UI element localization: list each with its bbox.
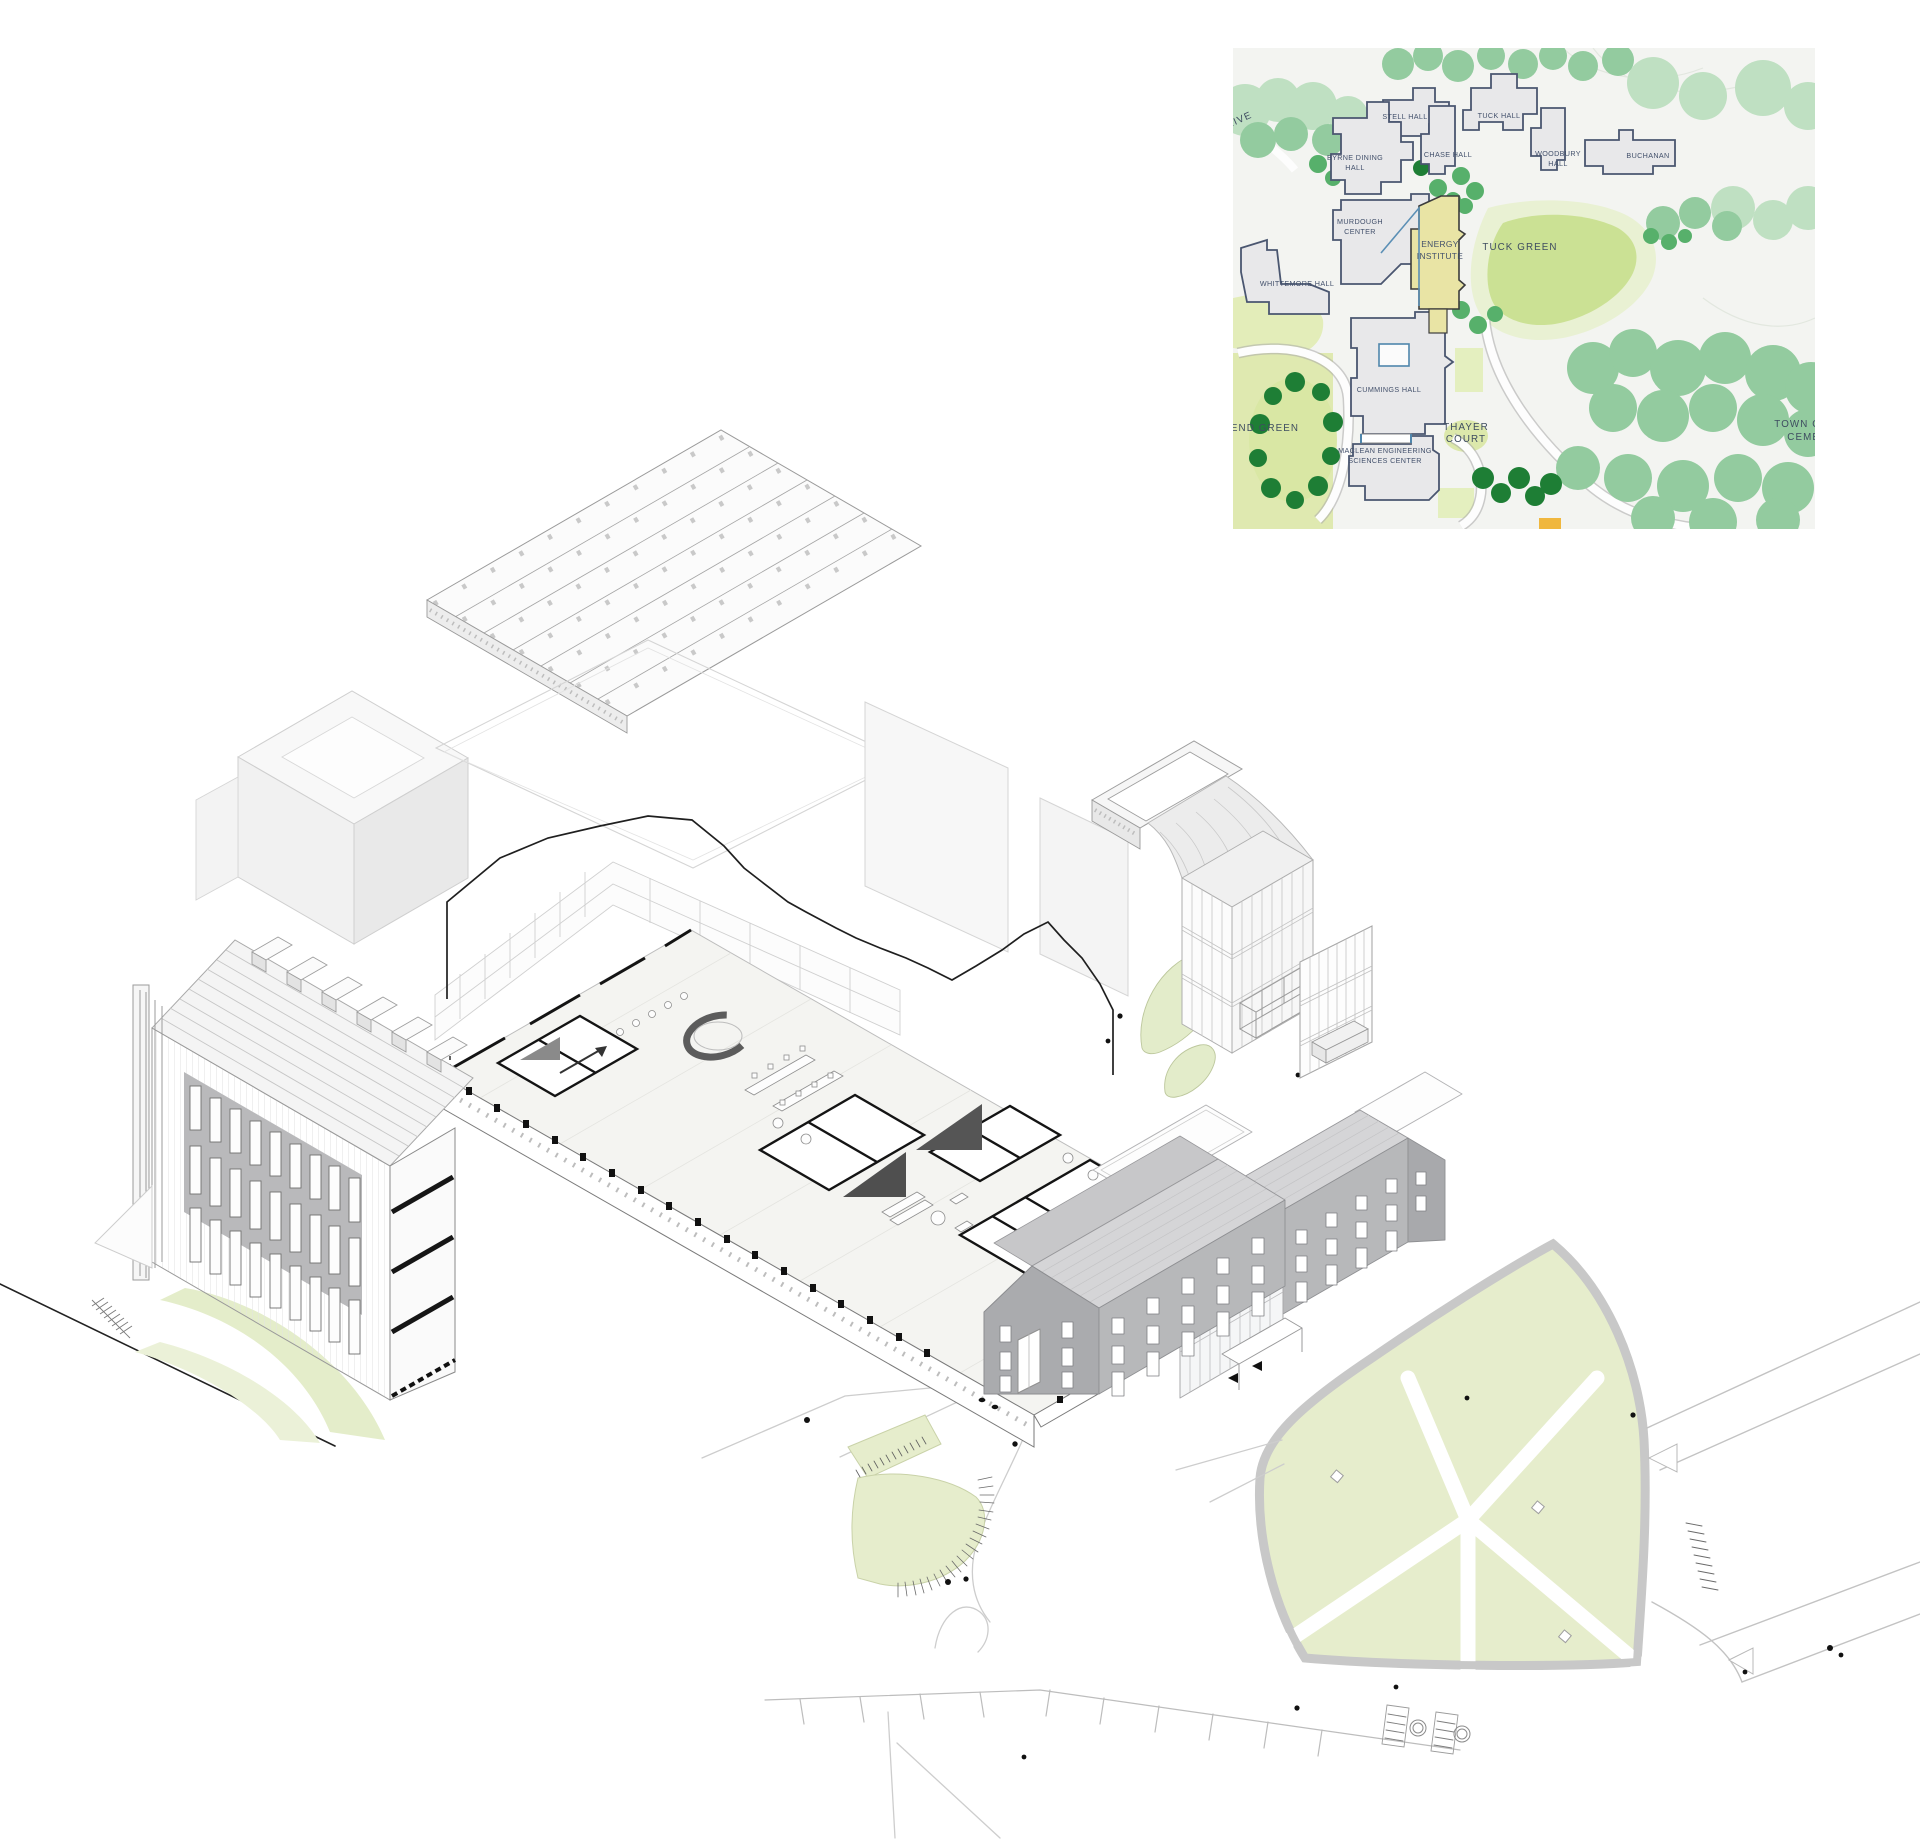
map-label-thayer-1: THAYER [1443,422,1489,433]
map-label-chase: CHASE HALL [1424,150,1472,159]
campus-key-map: RIVE STELL HALL TUCK HALL BYRNE DINING H… [1219,41,1848,546]
map-label-buchanan: BUCHANAN [1626,151,1669,160]
parking-rows [765,1690,1460,1756]
map-label-murdough-2: CENTER [1344,227,1376,236]
map-label-woodbury-2: HALL [1548,159,1567,168]
map-label-town-2: CEMETE [1787,432,1834,443]
teardrop-lawn-small [1165,1045,1216,1098]
presentation-sheet: RIVE STELL HALL TUCK HALL BYRNE DINING H… [0,0,1920,1839]
map-label-thayer-2: COURT [1446,434,1486,445]
terrace-lawn-strip [848,1415,941,1478]
map-label-energy-2: INSTITUTE [1417,251,1463,261]
map-bridge [1361,434,1411,443]
map-label-tuck-hall: TUCK HALL [1478,111,1521,120]
map-label-cummings: CUMMINGS HALL [1357,385,1421,394]
map-label-end-green: END GREEN [1231,423,1299,434]
bay-window [1018,1329,1040,1393]
parking-trees [1410,1720,1470,1742]
map-label-murdough-1: MURDOUGH [1337,217,1383,226]
map-label-byrne-2: HALL [1345,163,1364,172]
axonometric-drawing-canvas: RIVE STELL HALL TUCK HALL BYRNE DINING H… [0,0,1920,1839]
parking-hatched-stalls [1382,1705,1458,1754]
map-label-town-1: TOWN OF HA [1774,419,1847,430]
map-label-byrne-1: BYRNE DINING [1327,153,1383,162]
map-energy-connector [1429,309,1447,333]
road-islands [1649,1444,1753,1674]
map-label-maclean-1: MACLEAN ENGINEERING [1338,446,1432,455]
map-courtyard [1379,344,1409,366]
plaza-edges [702,1383,1284,1838]
map-label-woodbury-1: WOODBURY [1535,149,1581,158]
map-label-whittemore: WHITTEMORE HALL [1260,279,1334,288]
map-label-energy-1: ENERGY [1421,239,1459,249]
louver-facade-building [92,937,473,1443]
map-label-tuck-green: TUCK GREEN [1482,242,1557,253]
map-label-stell: STELL HALL [1382,112,1427,121]
entry-canopy [95,1186,152,1268]
east-roads [1647,1302,1920,1682]
crosswalk-hatch [1686,1523,1718,1590]
map-label-maclean-2: SCIENCES CENTER [1348,456,1422,465]
sawtooth-skylight-roof [427,430,921,733]
terrace-lawn-blob [852,1474,985,1586]
